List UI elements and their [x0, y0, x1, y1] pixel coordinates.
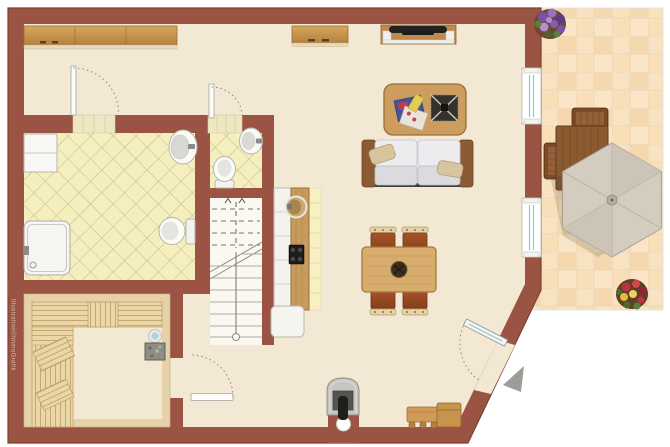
staircase: [210, 198, 262, 345]
bath-cabinet: [24, 134, 57, 172]
tv-unit: [381, 25, 456, 44]
floor-plan: Illustration©ImmoGrafik: [0, 0, 670, 447]
guest-wc: [210, 128, 263, 188]
floor-plan-canvas: Illustration©ImmoGrafik: [0, 0, 670, 447]
watermark-text: Illustration©ImmoGrafik: [10, 299, 17, 372]
wall-sauna-top: [8, 280, 195, 294]
cooktop: [289, 245, 304, 264]
wall-bath-top-left: [24, 115, 73, 133]
shower-faucet: [24, 246, 29, 255]
kitchen-tile-strip: [309, 188, 321, 310]
sofa-seat-left: [375, 166, 417, 185]
stair-newel-post: [233, 334, 240, 341]
wall-bath-top-mid: [115, 115, 208, 133]
sink-tap: [287, 204, 292, 209]
decor-bowl: [431, 95, 458, 121]
window-2: [522, 198, 541, 257]
entry-chest: [437, 403, 461, 427]
entrance-arrow-icon: [503, 366, 524, 392]
bathroom: [24, 130, 197, 280]
wall-bath-wc-divider: [195, 115, 210, 294]
entry-bench: [407, 407, 439, 428]
coffee-table: [384, 84, 466, 135]
sofa-arm-right: [459, 140, 473, 187]
bath-washbasin: [169, 130, 197, 164]
dining-chair-bottom-right: [402, 290, 428, 315]
sideboard-desk: [292, 26, 348, 47]
stove-pipe: [338, 396, 348, 420]
dining-table: [362, 247, 436, 292]
wall-sauna-right-upper: [170, 294, 183, 358]
dining-chair-bottom-left: [370, 290, 396, 315]
wc-washbasin: [240, 128, 263, 154]
bath-toilet: [159, 218, 195, 245]
sauna: [24, 294, 170, 427]
shower-tray: [24, 221, 70, 275]
kitchen-sink: [286, 197, 307, 218]
wc-toilet: [214, 157, 236, 189]
sauna-bench-top-cross: [88, 302, 118, 327]
hall-sideboard: [24, 26, 177, 49]
window-1: [522, 68, 541, 124]
wall-sauna-right-lower: [170, 398, 183, 427]
kitchen-appliance: [271, 306, 304, 337]
wall-wc-bottom: [195, 188, 274, 198]
